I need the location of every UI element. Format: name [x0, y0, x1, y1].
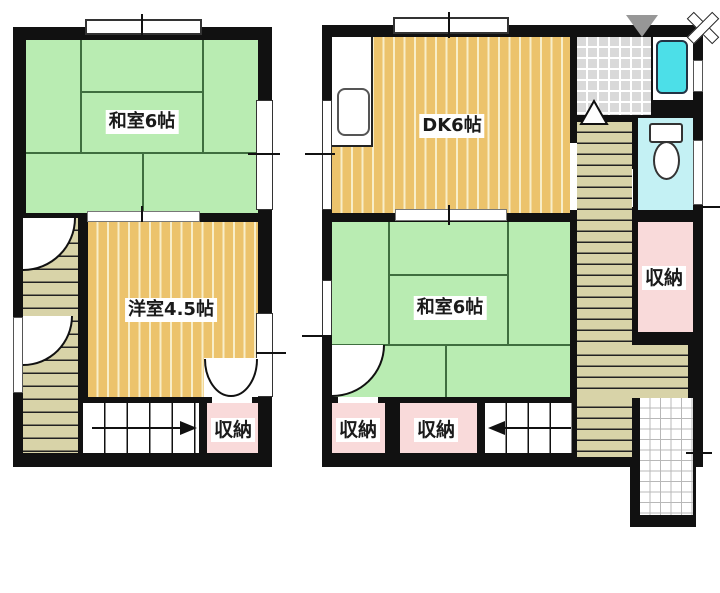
stairs-direction-arrow — [90, 419, 198, 437]
closet-double-door — [204, 358, 258, 398]
window — [256, 313, 273, 397]
kitchen-sink — [337, 88, 370, 136]
room-label-washitsu-2f: 和室6帖 — [106, 110, 179, 134]
porch-tile — [640, 398, 693, 515]
entrance-arrow — [626, 15, 658, 37]
stairs-up-triangle — [579, 99, 609, 126]
sliding-door-opening-2f — [87, 211, 200, 222]
tatami-seam — [80, 91, 204, 93]
dimension-tick — [448, 12, 450, 38]
dimension-tick — [448, 205, 450, 225]
dimension-tick — [256, 352, 286, 354]
tatami-seam — [202, 40, 204, 153]
tatami-seam — [142, 152, 144, 213]
window — [693, 140, 703, 205]
window — [393, 17, 509, 34]
room-label-dk: DK6帖 — [419, 114, 484, 138]
tatami-seam — [80, 40, 82, 153]
window — [256, 100, 273, 210]
sliding-door-opening-1f — [395, 209, 507, 221]
dimension-tick — [305, 153, 335, 155]
dimension-tick — [697, 206, 720, 208]
tatami-seam — [445, 344, 447, 397]
toilet-tank — [649, 123, 683, 143]
storage-label-right-1f: 収納 — [642, 266, 686, 290]
tatami-seam — [388, 222, 390, 345]
room-label-youshitsu-2f: 洋室4.5帖 — [125, 298, 217, 322]
compass-x-mark — [683, 8, 720, 46]
dimension-tick — [248, 153, 280, 155]
bathtub — [656, 40, 688, 94]
window — [322, 100, 332, 210]
window — [85, 19, 202, 35]
room-label-washitsu-1f: 和室6帖 — [414, 296, 487, 320]
tatami-seam — [507, 222, 509, 345]
window — [322, 280, 332, 337]
dimension-tick — [141, 14, 143, 40]
toilet-bowl — [653, 141, 680, 180]
stairs-direction-arrow — [487, 419, 573, 437]
tatami-seam — [388, 274, 509, 276]
dimension-tick — [302, 335, 332, 337]
floorplan-canvas: 和室6帖 洋室4.5帖 収納 — [0, 0, 720, 593]
storage-label-1f-b: 収納 — [414, 418, 458, 442]
staircase-1f-landing — [577, 345, 688, 398]
window — [693, 60, 703, 92]
dimension-tick — [686, 452, 712, 454]
window — [13, 317, 23, 393]
staircase-1f — [577, 122, 632, 457]
storage-label-1f-a: 収納 — [336, 418, 380, 442]
storage-label-2f: 収納 — [211, 418, 255, 442]
